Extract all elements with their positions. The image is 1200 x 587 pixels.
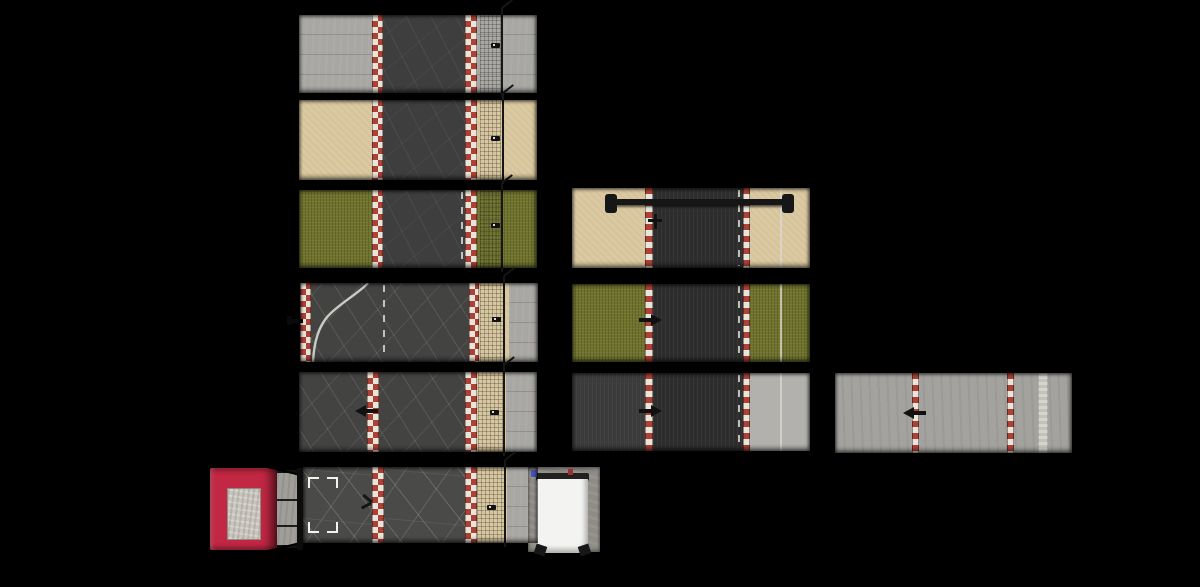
tile-straight-grass-dark[interactable] [572,284,810,362]
curb-right [743,373,750,451]
roof-corner-left [534,544,548,557]
trackside-sign [491,136,500,141]
trackside-sign [487,505,496,510]
concrete-surface [835,373,1072,453]
fence-post [503,276,505,366]
curb-right [465,190,477,268]
arrow-tail [913,411,926,415]
fence-post [503,365,505,456]
road-dashed-line [461,192,463,266]
painted-strip [1038,373,1048,453]
skylight [227,488,261,540]
verge-left-grass [299,190,372,268]
arrow-tail [365,409,378,413]
direction-arrow [638,405,662,417]
bracket-corner-br [327,522,338,533]
road-dark [653,373,743,451]
scene [0,0,1200,587]
fence-post [501,183,503,272]
arrow-head [651,314,662,326]
verge-left-grass [572,284,645,362]
verge-left-concrete [299,15,372,93]
curb-left [372,190,383,268]
fence-post [501,8,503,97]
arrow-tail [639,318,652,322]
cross-horizontal [648,219,662,222]
road-asphalt [383,15,465,93]
tile-straight-grass[interactable] [299,190,537,268]
vent-red [568,469,573,475]
edge-line [780,373,782,451]
trackside-sign [491,43,500,48]
overhead-gantry-cap-1 [605,194,617,213]
direction-arrow [355,405,379,417]
road-asphalt [383,190,465,268]
tile-straight-sand[interactable] [299,100,537,180]
verge-left-asphalt [572,373,645,451]
tile-runoff-sand[interactable] [299,372,537,452]
curb-right [465,15,477,93]
tile-wide-concrete[interactable] [835,373,1072,453]
garage-dark-edge [297,468,303,550]
tile-gantry-sand[interactable] [572,188,810,268]
arrow-head [651,405,662,417]
trackside-sign [492,317,501,322]
fence-post [504,460,506,547]
curb-right [465,372,477,452]
curb-right [465,467,477,543]
bracket-corner-tl [308,477,319,488]
road-cracked [384,467,465,543]
overhead-gantry-bar [616,199,784,205]
road-asphalt [383,100,465,180]
loading-dock [277,470,297,548]
arrow-tail [639,409,652,413]
selection-brackets [308,477,338,533]
road-dashed-line [738,375,740,449]
road-dark [653,284,743,362]
pole-marker [287,316,303,325]
curb-left [372,15,383,93]
vent-blue [531,470,537,477]
curb-left [372,100,383,180]
dock-line-1 [277,499,297,501]
road-cobble [379,372,465,452]
trackside-sign [491,223,500,228]
tile-straight-gray[interactable] [572,373,810,451]
dock-line-2 [277,525,297,527]
fence-tip [503,267,514,277]
fence-tip [504,451,515,461]
tile-straight-concrete[interactable] [299,15,537,93]
small-object [360,495,374,511]
white-garage[interactable] [528,467,600,556]
fence-post [502,93,504,184]
fence-mesh [480,15,501,93]
tile-pit-entry[interactable] [300,283,538,362]
direction-arrow [638,314,662,326]
curb-right [743,284,750,362]
bracket-corner-tr [327,477,338,488]
edge-line [780,284,782,362]
red-garage[interactable] [210,468,303,550]
pole-knob [287,316,292,325]
overhead-gantry-cap-2 [782,194,794,213]
road-dashed-line [738,286,740,360]
white-garage-roof [537,479,588,553]
curb-right [1007,373,1014,453]
bracket-corner-bl [308,522,319,533]
fence-tip [501,0,512,9]
verge-left-sand [299,100,372,180]
fence-mesh [480,190,501,268]
direction-arrow [903,407,927,419]
wing-2 [361,502,372,510]
curb-right [465,100,477,180]
tile-start-selected[interactable] [303,467,538,543]
signal-marker [648,214,662,229]
verge-concrete [506,372,537,452]
trackside-sign [490,410,499,415]
